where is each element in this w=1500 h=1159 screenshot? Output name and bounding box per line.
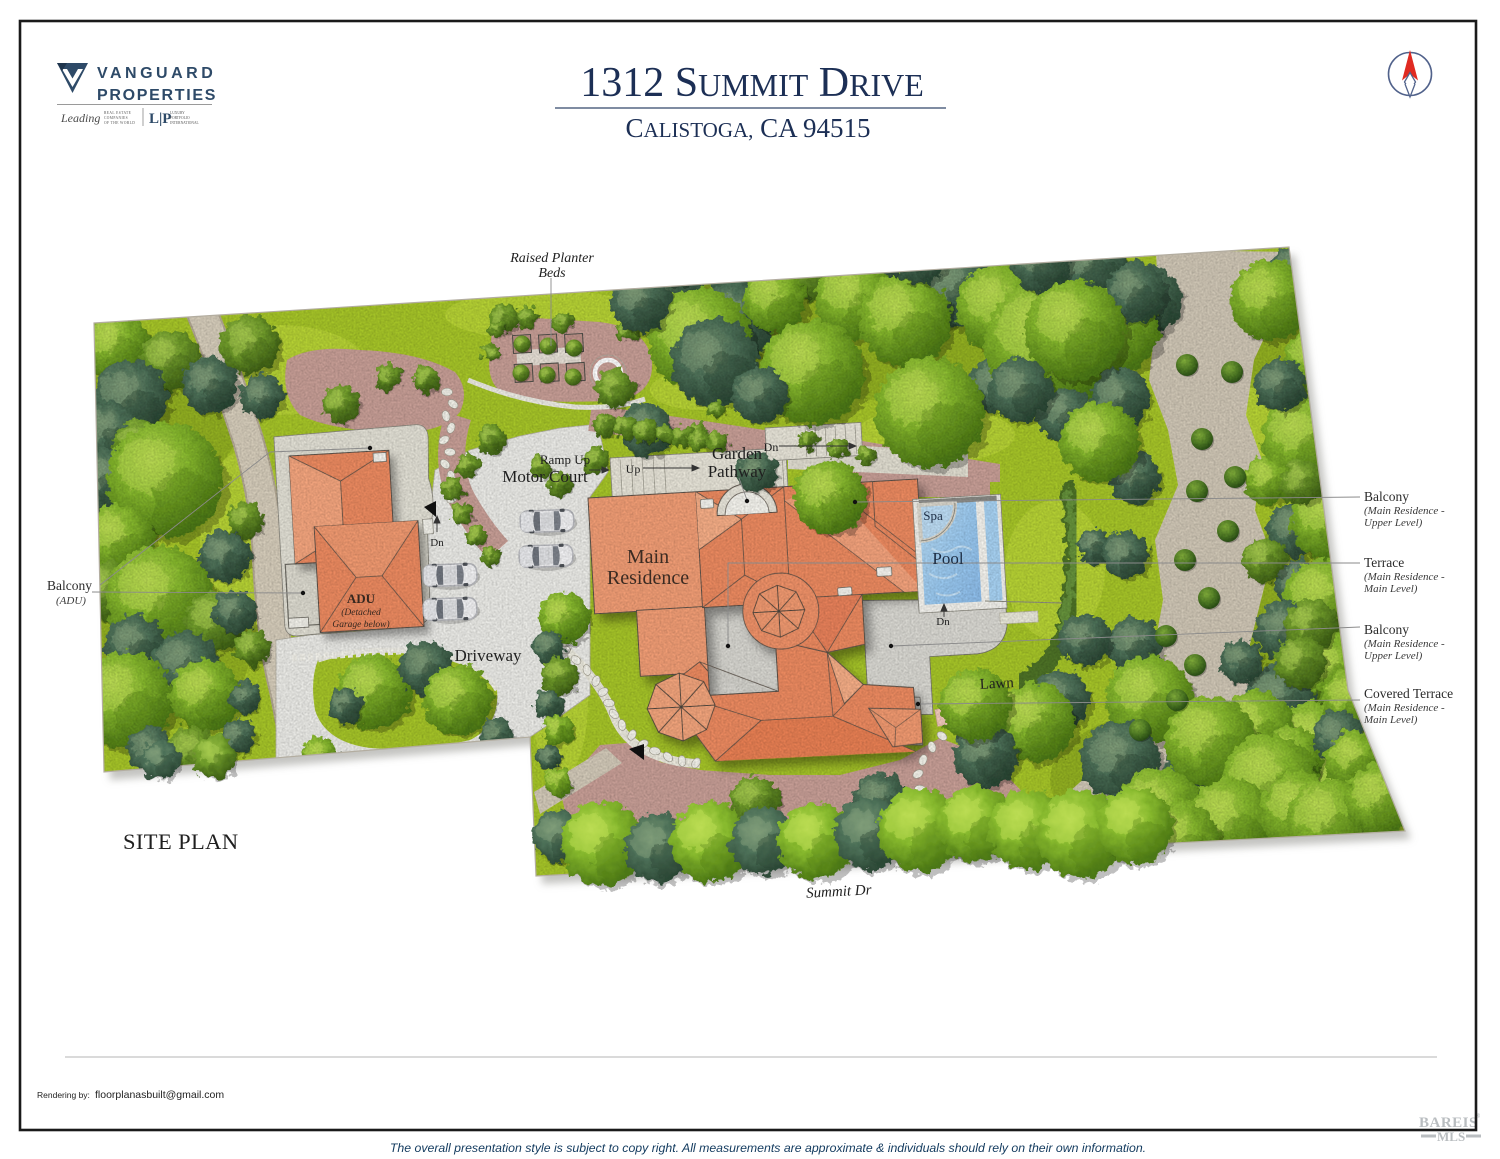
svg-text:SITE PLAN: SITE PLAN	[123, 829, 238, 854]
svg-text:Ramp Up: Ramp Up	[540, 452, 590, 467]
svg-text:Dn: Dn	[764, 440, 779, 454]
svg-text:Terrace: Terrace	[1364, 555, 1404, 570]
svg-text:(Main Residence -: (Main Residence -	[1364, 638, 1445, 650]
svg-text:Summit Dr: Summit Dr	[806, 882, 872, 901]
svg-text:(Main Residence -: (Main Residence -	[1364, 505, 1445, 517]
svg-text:Garden: Garden	[712, 444, 763, 463]
svg-text:Driveway: Driveway	[454, 646, 522, 665]
svg-text:REAL ESTATE: REAL ESTATE	[104, 111, 132, 115]
svg-text:PORTFOLIO: PORTFOLIO	[170, 116, 190, 120]
svg-text:Dn: Dn	[936, 616, 950, 628]
svg-text:Covered Terrace: Covered Terrace	[1364, 686, 1453, 701]
svg-text:Lawn: Lawn	[979, 675, 1014, 693]
svg-text:Rendering by:: Rendering by:	[37, 1090, 90, 1100]
svg-text:Balcony: Balcony	[1364, 489, 1409, 504]
svg-text:Raised Planter: Raised Planter	[509, 251, 594, 266]
svg-text:VANGUARD: VANGUARD	[97, 65, 216, 82]
svg-text:Beds: Beds	[538, 266, 566, 281]
svg-text:Pool: Pool	[932, 549, 963, 568]
svg-text:COMPANIES: COMPANIES	[104, 116, 128, 120]
svg-text:Leading: Leading	[60, 111, 100, 125]
svg-text:Spa: Spa	[923, 508, 943, 523]
svg-text:PROPERTIES: PROPERTIES	[97, 87, 217, 104]
svg-text:Dn: Dn	[430, 537, 444, 549]
svg-text:Balcony: Balcony	[1364, 622, 1409, 637]
svg-text:Main Level): Main Level)	[1363, 714, 1418, 726]
svg-text:OF THE WORLD: OF THE WORLD	[104, 121, 135, 125]
svg-text:The overall presentation style: The overall presentation style is subjec…	[390, 1141, 1146, 1155]
svg-text:Motor Court: Motor Court	[502, 467, 588, 486]
svg-text:1312 SUMMIT DRIVE: 1312 SUMMIT DRIVE	[580, 60, 924, 106]
svg-text:Main Level): Main Level)	[1363, 583, 1418, 595]
svg-text:Pathway: Pathway	[708, 462, 767, 481]
svg-text:(Main Residence -: (Main Residence -	[1364, 571, 1445, 583]
svg-text:CALISTOGA, CA 94515: CALISTOGA, CA 94515	[626, 113, 871, 143]
svg-text:(Main Residence -: (Main Residence -	[1364, 702, 1445, 714]
svg-text:LUXURY: LUXURY	[170, 111, 185, 115]
svg-text:L|P: L|P	[149, 111, 171, 127]
svg-text:Balcony: Balcony	[47, 578, 92, 593]
svg-text:Main: Main	[627, 546, 669, 568]
svg-text:floorplanasbuilt@gmail.com: floorplanasbuilt@gmail.com	[95, 1089, 224, 1101]
svg-text:(ADU): (ADU)	[56, 595, 86, 607]
svg-text:Upper Level): Upper Level)	[1364, 517, 1423, 529]
svg-text:INTERNATIONAL: INTERNATIONAL	[170, 121, 199, 125]
svg-text:Up: Up	[626, 462, 641, 476]
svg-text:Upper Level): Upper Level)	[1364, 650, 1423, 662]
svg-text:Residence: Residence	[607, 567, 689, 589]
